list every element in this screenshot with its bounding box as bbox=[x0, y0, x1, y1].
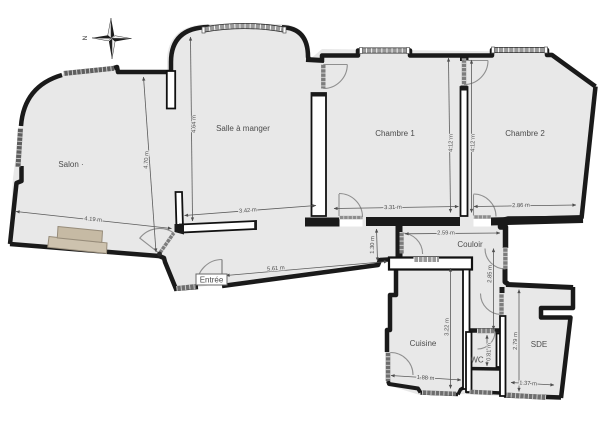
svg-text:Chambre 2: Chambre 2 bbox=[505, 129, 545, 138]
svg-text:Couloir: Couloir bbox=[457, 240, 483, 249]
svg-text:1.37 m: 1.37 m bbox=[519, 381, 537, 388]
svg-text:Chambre 1: Chambre 1 bbox=[375, 129, 415, 138]
svg-text:0.81 m: 0.81 m bbox=[486, 343, 492, 361]
svg-text:2.86 m: 2.86 m bbox=[512, 203, 530, 209]
svg-text:Entrée: Entrée bbox=[200, 276, 224, 285]
svg-text:4.64 m: 4.64 m bbox=[191, 115, 197, 133]
svg-text:2.85 m: 2.85 m bbox=[487, 265, 494, 283]
svg-text:4.12 m: 4.12 m bbox=[470, 134, 476, 152]
svg-text:4.12 m: 4.12 m bbox=[448, 134, 454, 152]
svg-text:2.59 m: 2.59 m bbox=[437, 231, 455, 237]
svg-text:1.30 m: 1.30 m bbox=[370, 236, 377, 254]
svg-text:3.22 m: 3.22 m bbox=[444, 318, 450, 336]
svg-text:WC: WC bbox=[470, 356, 484, 365]
svg-text:Salle à manger: Salle à manger bbox=[216, 124, 270, 133]
svg-text:Cuisine: Cuisine bbox=[410, 339, 437, 348]
svg-text:2.79 m: 2.79 m bbox=[513, 332, 519, 350]
svg-text:3.31 m: 3.31 m bbox=[384, 205, 402, 211]
svg-text:N: N bbox=[82, 35, 89, 40]
svg-text:1.88 m: 1.88 m bbox=[417, 375, 435, 382]
svg-text:4.70 m: 4.70 m bbox=[143, 151, 150, 169]
svg-text:Salon ·: Salon · bbox=[58, 160, 83, 169]
svg-text:SDE: SDE bbox=[531, 340, 547, 349]
